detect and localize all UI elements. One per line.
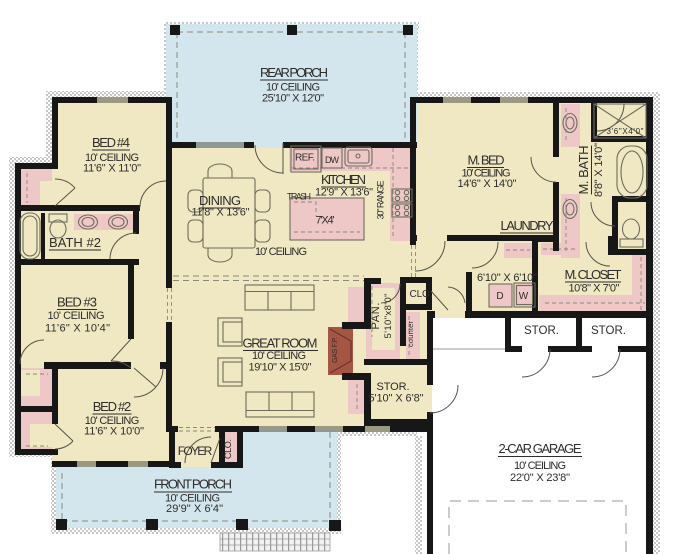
svg-text:STOR.: STOR. xyxy=(591,325,626,337)
svg-text:30" RANGE: 30" RANGE xyxy=(376,181,386,220)
svg-text:25'10" X 12'0": 25'10" X 12'0" xyxy=(262,93,324,105)
svg-text:BED #3: BED #3 xyxy=(57,295,97,310)
svg-text:5'10" X 6'8": 5'10" X 6'8" xyxy=(369,393,424,405)
svg-text:STOR.: STOR. xyxy=(377,381,410,393)
svg-text:W: W xyxy=(519,291,529,302)
svg-text:14'6" X 14'0": 14'6" X 14'0" xyxy=(458,178,517,190)
svg-text:FRONT PORCH: FRONT PORCH xyxy=(154,477,232,492)
svg-text:D: D xyxy=(496,291,503,302)
svg-text:LAUNDRY: LAUNDRY xyxy=(501,218,554,233)
svg-text:10'8" X 7'0": 10'8" X 7'0" xyxy=(569,283,620,295)
svg-text:22'0" X 23'8": 22'0" X 23'8" xyxy=(510,472,570,484)
svg-text:11'6" X 10'4": 11'6" X 10'4" xyxy=(45,323,110,335)
svg-text:11'6" X 11'0": 11'6" X 11'0" xyxy=(83,163,141,175)
svg-text:BED #2: BED #2 xyxy=(93,399,132,414)
svg-text:19'10" X 15'0": 19'10" X 15'0" xyxy=(249,362,312,374)
svg-text:CLO.: CLO. xyxy=(223,439,233,459)
svg-text:10' CEILING: 10' CEILING xyxy=(255,246,307,258)
svg-text:M. CLOSET: M. CLOSET xyxy=(565,267,622,282)
svg-text:10' CEILING: 10' CEILING xyxy=(514,460,566,472)
svg-text:GREAT ROOM: GREAT ROOM xyxy=(243,336,318,351)
svg-text:counter: counter xyxy=(406,321,415,348)
svg-text:M. BED: M. BED xyxy=(468,153,505,168)
svg-text:10' CEILING: 10' CEILING xyxy=(48,310,105,322)
svg-text:3'6"X4'0": 3'6"X4'0" xyxy=(607,127,644,136)
svg-text:KITCHEN: KITCHEN xyxy=(321,172,366,187)
svg-text:DW: DW xyxy=(325,155,340,165)
svg-text:FOYER: FOYER xyxy=(178,444,213,458)
svg-text:10' CEILING: 10' CEILING xyxy=(252,350,306,362)
svg-text:REF.: REF. xyxy=(295,153,315,164)
svg-text:11'6" X 10'0": 11'6" X 10'0" xyxy=(84,426,144,438)
svg-text:29'9" X 6'4": 29'9" X 6'4" xyxy=(166,503,223,515)
svg-text:STOR.: STOR. xyxy=(524,325,559,337)
svg-text:7'X4': 7'X4' xyxy=(316,215,335,227)
svg-text:REAR PORCH: REAR PORCH xyxy=(260,65,328,80)
svg-text:M. BATH: M. BATH xyxy=(576,146,591,195)
svg-text:CLO.: CLO. xyxy=(410,289,433,300)
svg-text:6'10" X 6'10": 6'10" X 6'10" xyxy=(477,272,537,284)
svg-text:2-CAR GARAGE: 2-CAR GARAGE xyxy=(499,441,582,456)
svg-text:GAS F.P.: GAS F.P. xyxy=(332,337,339,363)
svg-text:PAN.: PAN. xyxy=(370,303,382,330)
svg-text:12'9" X 13'6": 12'9" X 13'6" xyxy=(315,187,373,199)
svg-text:BED #4: BED #4 xyxy=(92,135,130,150)
svg-text:TRASH: TRASH xyxy=(287,192,311,202)
svg-text:8'8" X 14'0": 8'8" X 14'0" xyxy=(593,143,605,197)
svg-text:BATH #2: BATH #2 xyxy=(49,235,101,250)
svg-text:5'10"x8'0": 5'10"x8'0" xyxy=(383,294,394,339)
